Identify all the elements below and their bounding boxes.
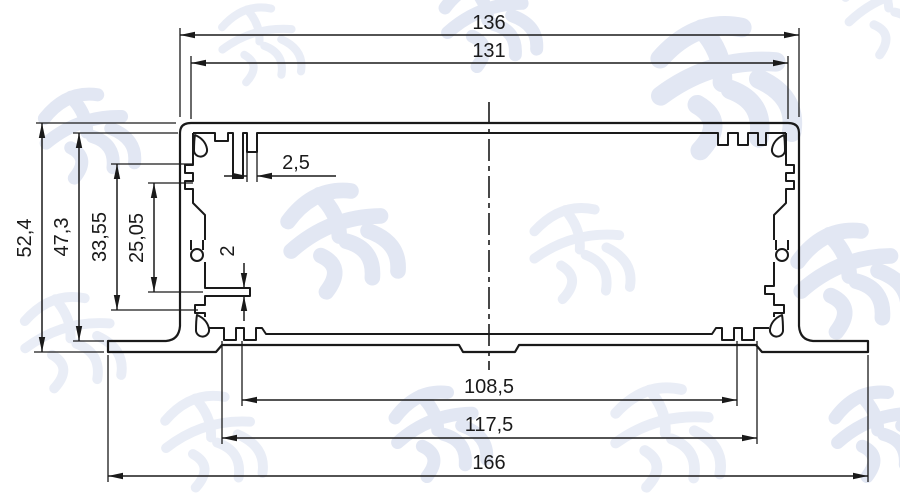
dimension-height-slot-outer: 33,55: [89, 164, 117, 310]
dimension-bottom-width-overall: 166: [108, 452, 868, 476]
dim-label-25-05: 25,05: [126, 213, 148, 263]
drawing-canvas: 136 131 52,4 47,3 33,55 25,05 2,5 2 108,…: [0, 0, 900, 500]
dimension-side-rib-thickness: 2: [217, 245, 244, 321]
left-screw-channel: [191, 240, 203, 261]
claw-bottom-left: [196, 315, 209, 337]
right-wall-lower-face: [765, 262, 784, 317]
dim-label-2: 2: [217, 245, 239, 256]
profile-outer-contour: [108, 123, 868, 352]
claw-top-left: [194, 135, 207, 157]
dim-label-166: 166: [472, 452, 505, 474]
left-wall-lower-face: [195, 262, 250, 317]
dim-label-117-5: 117,5: [465, 414, 514, 436]
dimension-height-slot-inner: 25,05: [126, 183, 154, 292]
right-screw-channel: [776, 240, 788, 261]
dim-label-33-55: 33,55: [89, 212, 111, 262]
dim-label-52-4: 52,4: [14, 219, 36, 258]
technical-drawing: 136 131 52,4 47,3 33,55 25,05 2,5 2 108,…: [0, 0, 900, 500]
claw-top-right: [772, 135, 785, 157]
dim-label-131: 131: [472, 40, 505, 62]
dim-label-136: 136: [472, 12, 505, 34]
claw-bottom-right: [770, 315, 783, 337]
dim-label-108-5: 108,5: [464, 376, 514, 398]
dimension-top-rib-thickness: 2,5: [224, 152, 336, 176]
dim-label-2-5: 2,5: [282, 152, 310, 174]
extrusion-profile: [108, 123, 868, 352]
dim-label-47-3: 47,3: [51, 218, 73, 257]
